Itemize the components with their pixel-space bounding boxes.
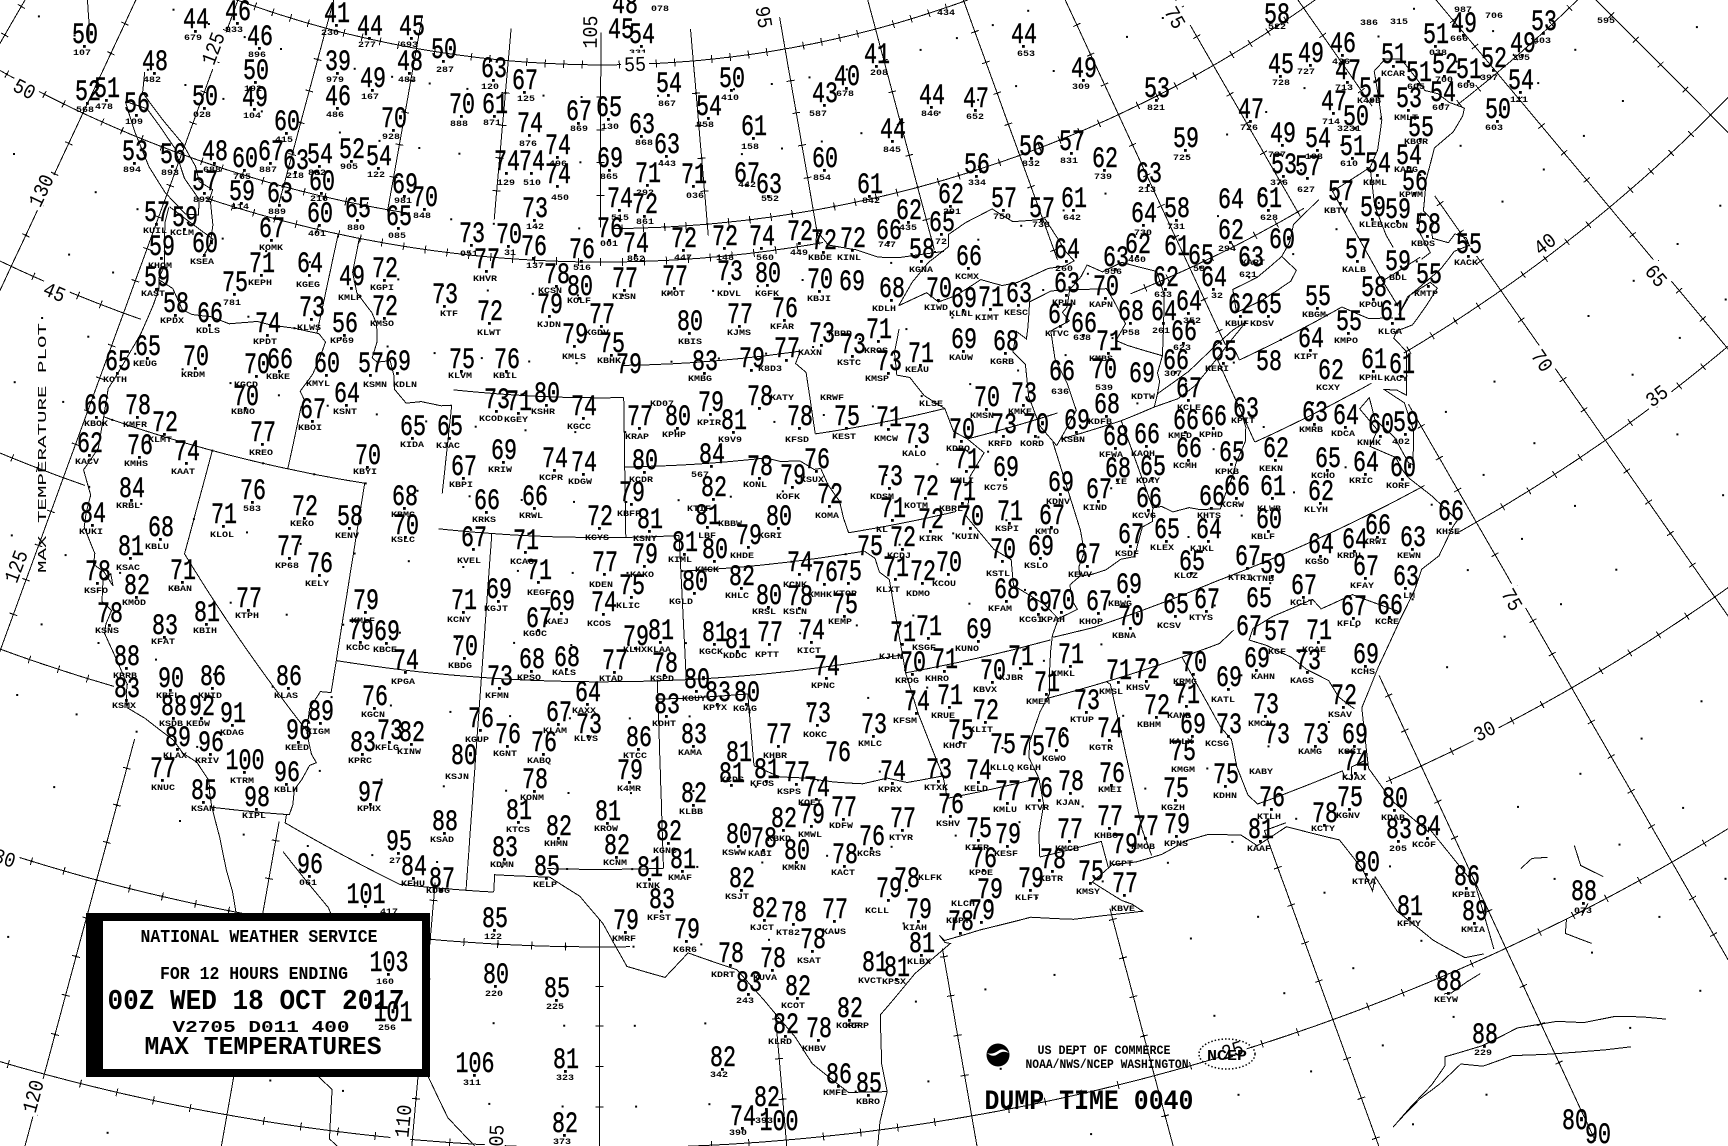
svg-text:277: 277 [358, 40, 376, 50]
svg-text:KIMT: KIMT [975, 313, 999, 323]
svg-text:58: 58 [1415, 209, 1441, 243]
svg-text:KFMY: KFMY [1397, 919, 1422, 929]
svg-text:KSTC: KSTC [837, 358, 861, 368]
svg-text:KVCT: KVCT [858, 976, 882, 986]
svg-text:KIND: KIND [1083, 503, 1107, 513]
svg-text:74: 74 [749, 221, 775, 255]
svg-text:82: 82 [785, 971, 811, 1005]
svg-text:76: 76 [1044, 723, 1070, 757]
svg-text:KMAF: KMAF [668, 873, 692, 883]
svg-text:595: 595 [1597, 16, 1615, 26]
svg-text:KERI: KERI [1205, 364, 1229, 374]
svg-text:69: 69 [549, 586, 575, 620]
svg-text:652: 652 [966, 112, 984, 122]
svg-text:KFAR: KFAR [770, 322, 795, 332]
svg-text:KCYS: KCYS [585, 533, 609, 543]
svg-text:KLWS: KLWS [297, 323, 321, 333]
svg-text:71: 71 [876, 402, 902, 436]
svg-text:80: 80 [451, 740, 477, 774]
svg-text:KDLN: KDLN [393, 380, 417, 390]
svg-text:KEVV: KEVV [1068, 570, 1093, 580]
svg-text:078: 078 [651, 4, 669, 14]
svg-text:64: 64 [1176, 286, 1202, 320]
svg-text:KDFW: KDFW [829, 821, 854, 831]
svg-text:67: 67 [1353, 551, 1379, 585]
svg-text:74: 74 [174, 436, 200, 470]
svg-text:KJAC: KJAC [436, 441, 460, 451]
svg-text:71: 71 [1008, 641, 1034, 675]
svg-text:KCLT: KCLT [1290, 598, 1314, 608]
svg-text:KBKE: KBKE [266, 372, 290, 382]
svg-text:69: 69 [839, 266, 865, 300]
svg-text:72: 72 [973, 695, 999, 729]
svg-text:KPGA: KPGA [391, 677, 416, 687]
svg-text:KEST: KEST [832, 432, 856, 442]
svg-text:483: 483 [398, 75, 416, 85]
svg-text:65: 65 [437, 411, 463, 445]
svg-text:65: 65 [1219, 437, 1245, 471]
svg-text:72: 72 [787, 216, 813, 250]
svg-text:KBAN: KBAN [168, 584, 192, 594]
svg-text:KTPA: KTPA [1352, 877, 1377, 887]
svg-text:KABI: KABI [748, 849, 772, 859]
svg-text:KFST: KFST [647, 913, 671, 923]
svg-text:KSNT: KSNT [333, 407, 357, 417]
svg-text:KBYI: KBYI [353, 467, 377, 477]
svg-text:KOLF: KOLF [567, 296, 591, 306]
svg-text:KHDE: KHDE [730, 551, 754, 561]
svg-text:KMHS: KMHS [124, 459, 148, 469]
svg-text:KBLU: KBLU [145, 542, 169, 552]
svg-text:62: 62 [1228, 289, 1254, 323]
svg-text:79: 79 [353, 585, 379, 619]
svg-text:KTYR: KTYR [889, 833, 914, 843]
svg-text:71: 71 [681, 159, 707, 193]
svg-text:KPRX: KPRX [878, 785, 903, 795]
svg-text:KSLC: KSLC [391, 535, 415, 545]
svg-text:71: 71 [1306, 615, 1332, 649]
svg-text:KBPI: KBPI [449, 480, 473, 490]
svg-text:KGCC: KGCC [567, 422, 591, 432]
svg-text:73: 73 [991, 409, 1017, 443]
svg-text:64: 64 [1196, 514, 1222, 548]
svg-text:74: 74 [607, 183, 633, 217]
svg-text:73: 73 [1295, 645, 1321, 679]
svg-text:KORF: KORF [1386, 481, 1410, 491]
svg-text:482: 482 [143, 75, 161, 85]
svg-text:110: 110 [392, 1104, 418, 1139]
svg-text:58: 58 [1256, 346, 1282, 380]
svg-text:83: 83 [1386, 814, 1412, 848]
svg-text:KLVS: KLVS [574, 734, 598, 744]
svg-text:KGNV: KGNV [1336, 811, 1361, 821]
svg-text:KCNY: KCNY [447, 615, 472, 625]
svg-text:NOAA/NWS/NCEP WASHINGTON: NOAA/NWS/NCEP WASHINGTON [1026, 1058, 1189, 1072]
svg-text:KLIC: KLIC [616, 601, 640, 611]
svg-text:KPRC: KPRC [348, 756, 372, 766]
svg-text:397: 397 [1480, 73, 1498, 83]
svg-text:82: 82 [771, 803, 797, 837]
svg-text:KHLC: KHLC [725, 591, 749, 601]
svg-text:KMLS: KMLS [562, 352, 586, 362]
svg-text:KTAD: KTAD [599, 674, 623, 684]
svg-text:KACT: KACT [831, 868, 855, 878]
svg-text:478: 478 [95, 102, 113, 112]
svg-text:KBOI: KBOI [298, 423, 322, 433]
svg-text:75: 75 [857, 531, 883, 565]
svg-text:KEYW: KEYW [1434, 995, 1459, 1005]
svg-text:71: 71 [954, 444, 980, 478]
svg-text:KAGS: KAGS [1290, 676, 1314, 686]
svg-text:KACK: KACK [1454, 258, 1479, 268]
svg-text:79: 79 [876, 873, 902, 907]
svg-text:DUMP TIME 0040: DUMP TIME 0040 [985, 1087, 1194, 1118]
svg-text:552: 552 [761, 194, 779, 204]
svg-text:KEKO: KEKO [290, 519, 314, 529]
svg-text:KGF: KGF [1268, 647, 1286, 657]
svg-text:KLOZ: KLOZ [1174, 571, 1198, 581]
svg-text:105: 105 [581, 15, 604, 48]
svg-text:KSLO: KSLO [1024, 561, 1048, 571]
svg-text:55: 55 [1416, 259, 1442, 293]
svg-text:79: 79 [537, 289, 563, 323]
svg-text:587: 587 [809, 109, 827, 119]
svg-text:568: 568 [76, 105, 94, 115]
svg-text:KSPI: KSPI [995, 524, 1019, 534]
svg-text:KIPL: KIPL [242, 811, 266, 821]
svg-text:KP68: KP68 [275, 561, 299, 571]
svg-text:KLNL: KLNL [949, 309, 973, 319]
svg-text:NATIONAL WEATHER SERVICE: NATIONAL WEATHER SERVICE [141, 927, 378, 948]
svg-text:KMOT: KMOT [661, 289, 685, 299]
svg-text:869: 869 [570, 124, 588, 134]
svg-text:727: 727 [1297, 67, 1315, 77]
svg-text:KPAH: KPAH [1041, 615, 1065, 625]
svg-text:65: 65 [345, 193, 371, 227]
svg-text:666: 666 [1450, 34, 1468, 44]
svg-text:KPIT: KPIT [1231, 416, 1255, 426]
svg-text:71: 71 [932, 644, 958, 678]
svg-text:78: 78 [760, 943, 786, 977]
svg-text:KINL: KINL [837, 253, 861, 263]
svg-text:KQET: KQET [798, 798, 822, 808]
svg-text:KPNS: KPNS [1164, 839, 1188, 849]
svg-text:KALO: KALO [902, 449, 926, 459]
svg-text:KUIN: KUIN [955, 532, 979, 542]
svg-text:KATL: KATL [1211, 695, 1235, 705]
svg-text:69: 69 [1048, 467, 1074, 501]
svg-text:71: 71 [1058, 639, 1084, 673]
svg-text:KGLD: KGLD [669, 597, 693, 607]
svg-text:69: 69 [385, 346, 411, 380]
svg-text:KINW: KINW [397, 747, 422, 757]
svg-text:82: 82 [752, 893, 778, 927]
svg-text:KMLU: KMLU [993, 805, 1017, 815]
svg-text:75: 75 [834, 401, 860, 435]
svg-text:460: 460 [1128, 255, 1146, 265]
svg-text:79: 79 [674, 914, 700, 948]
svg-text:678: 678 [836, 89, 854, 99]
svg-text:KCRS: KCRS [857, 849, 881, 859]
svg-text:KRIC: KRIC [1349, 476, 1373, 486]
svg-text:KBTR: KBTR [1039, 874, 1064, 884]
svg-text:76: 76 [307, 548, 333, 582]
svg-text:KMGM: KMGM [1171, 765, 1195, 775]
svg-text:80: 80 [766, 501, 792, 535]
svg-text:66: 66 [1438, 496, 1464, 530]
svg-text:71: 71 [978, 282, 1004, 316]
svg-text:70: 70 [452, 631, 478, 665]
svg-text:KCSV: KCSV [1157, 621, 1182, 631]
svg-text:KSWW: KSWW [722, 848, 747, 858]
svg-text:76: 76 [938, 789, 964, 823]
svg-text:KT82: KT82 [776, 928, 800, 938]
svg-text:65: 65 [1163, 589, 1189, 623]
svg-text:KAST: KAST [141, 289, 165, 299]
svg-text:P58: P58 [1122, 328, 1140, 338]
svg-text:KRAP: KRAP [625, 432, 649, 442]
svg-text:57: 57 [358, 348, 384, 382]
svg-text:KISN: KISN [612, 292, 636, 302]
svg-text:725: 725 [1173, 153, 1191, 163]
svg-text:KMSL: KMSL [1099, 687, 1123, 697]
svg-text:401: 401 [308, 229, 326, 239]
svg-text:KSBN: KSBN [1061, 435, 1085, 445]
svg-text:53: 53 [1144, 73, 1170, 107]
svg-text:510: 510 [523, 178, 541, 188]
svg-text:KOKC: KOKC [803, 730, 827, 740]
svg-text:86: 86 [276, 661, 302, 695]
svg-text:73: 73 [861, 709, 887, 743]
svg-text:225: 225 [546, 1002, 564, 1012]
svg-text:KCTY: KCTY [1311, 824, 1336, 834]
svg-text:67: 67 [1176, 373, 1202, 407]
svg-text:KGRB: KGRB [990, 357, 1014, 367]
svg-text:085: 085 [388, 231, 406, 241]
svg-text:43: 43 [812, 78, 838, 112]
svg-text:76: 76 [804, 444, 830, 478]
svg-text:KTF: KTF [440, 309, 458, 319]
svg-text:69: 69 [1129, 358, 1155, 392]
svg-text:72: 72 [913, 471, 939, 505]
svg-text:73: 73 [1264, 719, 1290, 753]
svg-text:KMPO: KMPO [1334, 336, 1358, 346]
svg-text:KVEL: KVEL [457, 556, 481, 566]
svg-text:KPHL: KPHL [1359, 373, 1383, 383]
svg-text:65: 65 [596, 92, 622, 126]
svg-text:KORD: KORD [1020, 439, 1044, 449]
svg-text:70: 70 [949, 414, 975, 448]
svg-text:653: 653 [1017, 49, 1035, 59]
svg-text:44: 44 [880, 114, 906, 148]
svg-text:KBRO: KBRO [856, 1097, 880, 1107]
svg-text:KESF: KESF [994, 849, 1018, 859]
svg-text:KCHS: KCHS [1351, 667, 1375, 677]
svg-text:KGSO: KGSO [1305, 557, 1329, 567]
svg-text:KLBB: KLBB [679, 807, 703, 817]
svg-text:58: 58 [337, 501, 363, 535]
svg-text:FOR 12 HOURS ENDING: FOR 12 HOURS ENDING [160, 964, 348, 985]
svg-text:55: 55 [624, 55, 647, 79]
svg-text:60: 60 [1269, 224, 1295, 258]
svg-text:76: 76 [812, 557, 838, 591]
svg-text:81: 81 [1248, 814, 1274, 848]
svg-text:KOTH: KOTH [103, 375, 127, 385]
svg-text:KPYX: KPYX [703, 703, 728, 713]
svg-text:KDLS: KDLS [196, 326, 220, 336]
svg-text:64: 64 [297, 248, 323, 282]
svg-text:KMTP: KMTP [1414, 289, 1438, 299]
svg-text:KIPT: KIPT [1294, 352, 1318, 362]
svg-text:KHVR: KHVR [473, 274, 498, 284]
svg-text:373: 373 [553, 1137, 571, 1146]
svg-text:65: 65 [1256, 289, 1282, 323]
svg-text:KAUW: KAUW [949, 353, 974, 363]
svg-text:KCON: KCON [1384, 221, 1408, 231]
svg-text:100: 100 [226, 745, 265, 779]
svg-text:KPHP: KPHP [662, 430, 686, 440]
svg-text:KPSO: KPSO [517, 673, 541, 683]
svg-text:74: 74 [393, 645, 419, 679]
svg-text:KPTT: KPTT [755, 650, 779, 660]
svg-text:621: 621 [1239, 270, 1257, 280]
svg-text:KDHN: KDHN [1213, 791, 1237, 801]
svg-text:44: 44 [1011, 19, 1037, 53]
svg-text:230: 230 [321, 28, 339, 38]
svg-text:KGUC: KGUC [523, 629, 547, 639]
svg-text:54: 54 [1365, 148, 1391, 182]
svg-text:KDDC: KDDC [723, 651, 747, 661]
svg-text:KCMX: KCMX [955, 272, 980, 282]
svg-text:KBDE: KBDE [808, 253, 832, 263]
svg-text:51: 51 [1381, 39, 1407, 73]
svg-text:KLEX: KLEX [1150, 543, 1175, 553]
svg-text:BDL: BDL [1389, 273, 1407, 283]
svg-text:61: 61 [1061, 183, 1087, 217]
svg-text:72: 72 [935, 237, 947, 247]
svg-text:130: 130 [601, 122, 619, 132]
svg-text:KLFK: KLFK [918, 873, 943, 883]
svg-text:KBVE: KBVE [1111, 904, 1135, 914]
svg-text:70: 70 [936, 547, 962, 581]
svg-text:KBIH: KBIH [193, 626, 217, 636]
svg-text:57: 57 [1328, 176, 1354, 210]
svg-text:64: 64 [1131, 198, 1157, 232]
svg-text:80: 80 [755, 258, 781, 292]
svg-text:323: 323 [556, 1073, 574, 1083]
svg-text:036: 036 [686, 191, 704, 201]
svg-text:KONL: KONL [743, 480, 767, 490]
svg-text:KFAT: KFAT [151, 637, 175, 647]
svg-text:KD07: KD07 [650, 399, 674, 409]
svg-text:KCMH: KCMH [1173, 461, 1197, 471]
svg-text:69: 69 [1116, 569, 1142, 603]
svg-text:KGZH: KGZH [1161, 803, 1185, 813]
svg-text:KGLH: KGLH [1017, 763, 1041, 773]
svg-text:75: 75 [1213, 759, 1239, 793]
svg-text:410: 410 [721, 93, 739, 103]
svg-text:KSAD: KSAD [430, 835, 454, 845]
svg-text:KLOL: KLOL [210, 530, 234, 540]
svg-text:74: 74 [571, 391, 597, 425]
svg-text:IE: IE [1115, 477, 1127, 487]
svg-text:73: 73 [1216, 709, 1242, 743]
svg-text:69: 69 [966, 614, 992, 648]
svg-text:80: 80 [702, 534, 728, 568]
svg-text:KTVR: KTVR [1025, 803, 1050, 813]
svg-text:871: 871 [483, 118, 501, 128]
svg-text:KSJN: KSJN [445, 772, 469, 782]
svg-text:67: 67 [1235, 541, 1261, 575]
svg-text:81: 81 [118, 531, 144, 565]
svg-text:75: 75 [1163, 773, 1189, 807]
svg-text:243: 243 [736, 996, 754, 1006]
svg-text:KP69: KP69 [330, 336, 354, 346]
svg-text:KRWF: KRWF [820, 393, 844, 403]
svg-text:158: 158 [741, 142, 759, 152]
svg-text:129: 129 [497, 178, 515, 188]
svg-text:70: 70 [990, 534, 1016, 568]
svg-text:67: 67 [1075, 539, 1101, 573]
svg-text:KJMS: KJMS [727, 328, 751, 338]
svg-text:54: 54 [1508, 65, 1534, 99]
svg-text:80: 80 [632, 445, 658, 479]
svg-text:KBUF: KBUF [1225, 319, 1249, 329]
svg-text:88: 88 [114, 641, 140, 675]
svg-text:114: 114 [231, 202, 249, 212]
svg-text:KLAS: KLAS [274, 691, 298, 701]
svg-text:KACV: KACV [75, 457, 100, 467]
svg-text:66: 66 [1134, 419, 1160, 453]
svg-text:KMFE: KMFE [823, 1088, 847, 1098]
svg-text:KLEB: KLEB [1359, 220, 1383, 230]
svg-text:KDGW: KDGW [568, 477, 593, 487]
svg-text:739: 739 [1094, 172, 1112, 182]
svg-text:79: 79 [562, 319, 588, 353]
svg-text:103: 103 [370, 947, 409, 981]
svg-text:888: 888 [450, 119, 468, 129]
svg-text:KRBL: KRBL [116, 501, 140, 511]
svg-text:KBVX: KBVX [973, 685, 998, 695]
svg-text:861: 861 [636, 217, 654, 227]
svg-text:KREO: KREO [249, 448, 273, 458]
svg-text:74: 74 [542, 443, 568, 477]
svg-text:79: 79 [1164, 809, 1190, 843]
svg-text:KEMP: KEMP [828, 617, 852, 627]
svg-text:75: 75 [966, 813, 992, 847]
svg-text:KEWN: KEWN [1397, 551, 1421, 561]
svg-text:77: 77 [150, 753, 176, 787]
svg-text:72: 72 [712, 221, 738, 255]
svg-text:KDVL: KDVL [717, 289, 741, 299]
svg-text:KBJI: KBJI [807, 294, 831, 304]
svg-text:KSJT: KSJT [725, 892, 749, 902]
svg-text:KLFT: KLFT [1015, 893, 1039, 903]
svg-text:72: 72 [918, 504, 944, 538]
svg-text:KBDG: KBDG [448, 661, 472, 671]
svg-text:74: 74 [591, 587, 617, 621]
svg-text:59: 59 [1393, 407, 1419, 441]
svg-text:KELY: KELY [305, 579, 330, 589]
svg-text:KSEA: KSEA [190, 257, 215, 267]
svg-text:71: 71 [937, 680, 963, 714]
svg-text:65: 65 [386, 201, 412, 235]
svg-text:80: 80 [483, 959, 509, 993]
svg-text:160: 160 [376, 977, 394, 987]
svg-text:KAHN: KAHN [1251, 672, 1275, 682]
svg-text:KEAU: KEAU [905, 365, 929, 375]
svg-text:79: 79 [632, 539, 658, 573]
